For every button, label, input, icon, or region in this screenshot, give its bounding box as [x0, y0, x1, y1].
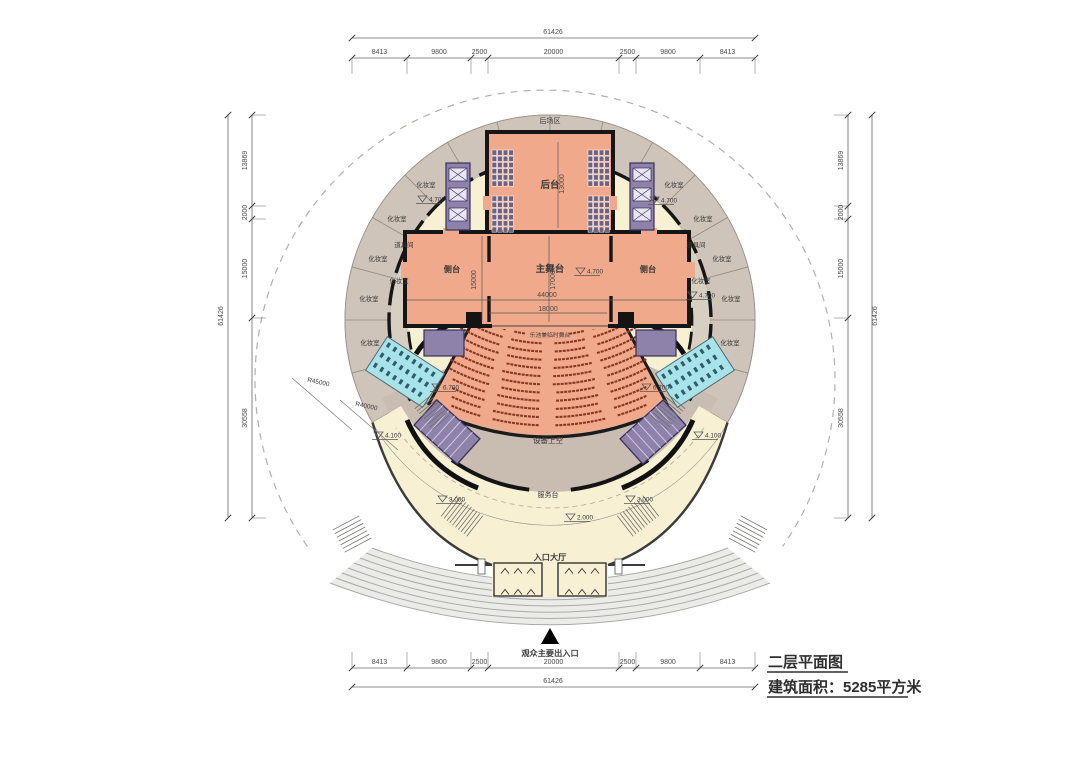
entrance-post-left: [478, 559, 485, 574]
side-stage-stair-right: [636, 330, 676, 356]
elevation-value: 4.100: [385, 433, 401, 440]
label-rear-stage: 后台: [540, 179, 560, 191]
dimension-value: 9800: [660, 659, 676, 666]
elevation-value: 4.700: [699, 293, 715, 300]
proscenium-pier-right: [618, 312, 634, 328]
elevation-value: 4.700: [587, 269, 603, 276]
label-orchestra-pit: 乐池兼临时舞台: [530, 331, 571, 339]
label-dressing-room: 化妆室: [360, 338, 380, 347]
plan-title: 二层平面图: [768, 654, 843, 671]
elevation-value: 3.000: [449, 497, 465, 504]
dimension-value: 30558: [242, 408, 249, 428]
label-dressing-room: 化妆室: [691, 276, 711, 285]
elevation-value: 3.000: [637, 497, 653, 504]
dimension-value: 13869: [242, 151, 249, 171]
label-dressing-room: 化妆室: [416, 180, 436, 189]
dimension-value: 9800: [660, 49, 676, 56]
title-block: 二层平面图 建筑面积：5285平方米: [767, 654, 922, 697]
label-dressing-room: 化妆室: [389, 276, 409, 285]
dimension-value: 8413: [720, 659, 736, 666]
dimension-value: 2500: [472, 49, 488, 56]
dimension-value: 61426: [872, 306, 879, 326]
label-dressing-room: 化妆室: [712, 254, 732, 263]
dimension-value: 9800: [431, 659, 447, 666]
dimension-value: 13869: [838, 151, 845, 171]
floor-plan-drawing: 后场区 后台 13000 侧台 侧台 主舞台 15000 17000 44000…: [0, 0, 1080, 763]
elevation-value: 6.700: [443, 385, 459, 392]
label-backstage-zone: 后场区: [540, 116, 561, 125]
label-props-room: 道具间: [394, 240, 413, 249]
label-equipment-void: 设备上空: [533, 435, 564, 445]
dim-18000: 18000: [538, 306, 558, 313]
dimension-value: 2500: [620, 49, 636, 56]
elevation-value: 6.700: [653, 385, 669, 392]
elevation-value: 4.700: [429, 197, 445, 204]
elevation-value: 2.000: [577, 515, 593, 522]
dimension-value: 2500: [620, 659, 636, 666]
dimension-value: 20000: [544, 49, 564, 56]
entrance-post-right: [615, 559, 622, 574]
door-gap: [483, 196, 491, 210]
label-dressing-room: 化妆室: [720, 338, 740, 347]
dimension-value: 2000: [242, 205, 249, 221]
dim-15000: 15000: [471, 270, 478, 290]
label-radius-45000: R45000: [307, 377, 331, 389]
dimension-value: 61426: [218, 306, 225, 326]
side-stage-stair-left: [424, 330, 464, 356]
proscenium-pier-left: [466, 312, 482, 328]
label-side-stage-right: 侧台: [640, 264, 656, 274]
elevation-value: 4.100: [705, 433, 721, 440]
label-dressing-room: 化妆室: [368, 254, 388, 263]
label-dressing-room: 化妆室: [387, 214, 407, 223]
dimension-value: 61426: [543, 29, 563, 36]
label-dressing-room: 化妆室: [664, 180, 684, 189]
dimension-value: 61426: [543, 678, 563, 685]
label-props-room: 道具间: [686, 240, 705, 249]
dimension-value: 9800: [431, 49, 447, 56]
dim-17000: 17000: [550, 270, 557, 290]
dim-44000: 44000: [537, 292, 557, 299]
stage-mouth-opening: [492, 319, 608, 329]
label-service-desk: 服务台: [538, 490, 559, 499]
door-gap: [609, 196, 617, 210]
dimension-value: 8413: [372, 659, 388, 666]
door-gap: [401, 262, 409, 278]
building-area-label: 建筑面积：5285平方米: [768, 678, 922, 696]
label-dressing-room: 化妆室: [721, 294, 741, 303]
label-side-stage-left: 侧台: [444, 264, 460, 274]
dimension-value: 2500: [472, 659, 488, 666]
label-dressing-room: 化妆室: [693, 214, 713, 223]
dimension-value: 30558: [838, 408, 845, 428]
label-entrance-hall: 入口大厅: [533, 552, 567, 562]
main-entrance-arrow-icon: [541, 628, 559, 644]
elevation-value: 4.700: [661, 198, 677, 205]
dimension-value: 15000: [242, 259, 249, 279]
door-gap: [687, 262, 695, 278]
dimension-value: 2000: [838, 205, 845, 221]
floor-plan-canvas: 后场区 后台 13000 侧台 侧台 主舞台 15000 17000 44000…: [0, 0, 1080, 763]
dimension-value: 8413: [720, 49, 736, 56]
dimension-value: 8413: [372, 49, 388, 56]
dimension-value: 20000: [544, 659, 564, 666]
dim-13000: 13000: [559, 174, 566, 194]
label-main-entrance: 观众主要出入口: [520, 648, 578, 658]
label-dressing-room: 化妆室: [359, 294, 379, 303]
dimension-value: 15000: [838, 259, 845, 279]
